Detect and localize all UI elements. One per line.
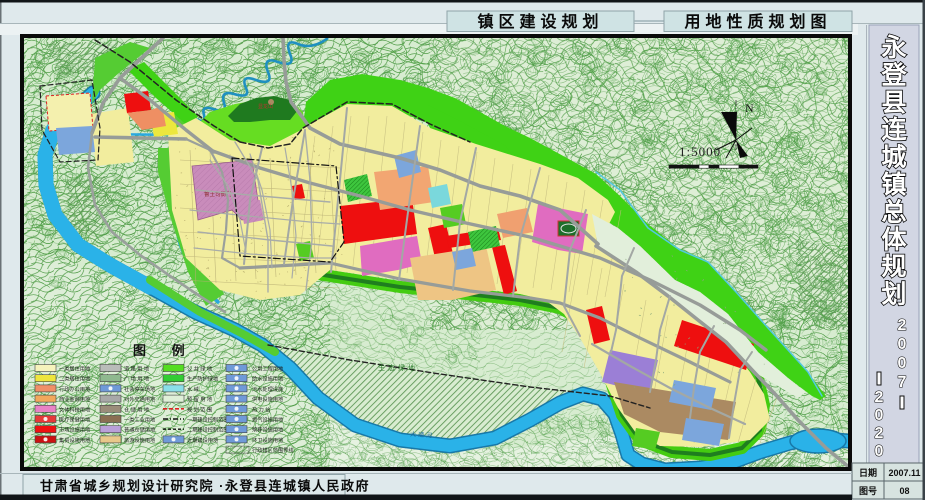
svg-text:0: 0 bbox=[898, 355, 907, 372]
svg-text:集贸设施用地: 集贸设施用地 bbox=[59, 436, 90, 444]
svg-text:永: 永 bbox=[881, 34, 906, 62]
svg-text:普通仓储用地: 普通仓储用地 bbox=[124, 426, 155, 434]
svg-text:登: 登 bbox=[880, 60, 907, 89]
svg-text:旅游设施用地: 旅游设施用地 bbox=[124, 436, 155, 444]
svg-text:生产防护绿地: 生产防护绿地 bbox=[187, 375, 218, 383]
svg-text:对外交通用地: 对外交通用地 bbox=[124, 395, 155, 403]
svg-text:二类居住用地: 二类居住用地 bbox=[59, 375, 90, 383]
svg-text:商业金融用地: 商业金融用地 bbox=[59, 395, 90, 403]
svg-text:日期: 日期 bbox=[859, 467, 877, 478]
svg-text:体: 体 bbox=[881, 226, 907, 254]
svg-text:N: N bbox=[745, 101, 754, 115]
svg-text:污水处理设施: 污水处理设施 bbox=[252, 385, 283, 393]
svg-text:2: 2 bbox=[875, 389, 884, 406]
svg-text:0: 0 bbox=[875, 407, 884, 424]
svg-text:城: 城 bbox=[881, 144, 906, 172]
svg-text:图号: 图号 bbox=[859, 486, 877, 496]
svg-text:二期建设控制范围: 二期建设控制范围 bbox=[187, 426, 229, 434]
svg-text:道 路 用 地: 道 路 用 地 bbox=[124, 365, 149, 373]
svg-text:划: 划 bbox=[881, 281, 906, 309]
svg-text:显龙山: 显龙山 bbox=[258, 103, 273, 110]
svg-text:2: 2 bbox=[898, 317, 907, 334]
svg-text:图 例: 图 例 bbox=[133, 343, 196, 358]
svg-text:水 域: 水 域 bbox=[187, 385, 199, 393]
svg-text:7: 7 bbox=[898, 374, 907, 391]
svg-text:公用工程用地: 公用工程用地 bbox=[252, 365, 283, 373]
svg-text:热 力 站: 热 力 站 bbox=[252, 405, 270, 413]
svg-text:市场设施用地: 市场设施用地 bbox=[59, 426, 90, 434]
svg-text:公 共 绿 地: 公 共 绿 地 bbox=[187, 365, 212, 373]
svg-text:县: 县 bbox=[881, 89, 906, 117]
svg-text:仓 储 用 地: 仓 储 用 地 bbox=[124, 405, 149, 413]
svg-text:医疗保健用地: 医疗保健用地 bbox=[59, 416, 90, 424]
svg-text:预 留 用 地: 预 留 用 地 bbox=[187, 395, 212, 403]
svg-text:生态绿地: 生态绿地 bbox=[378, 363, 418, 372]
svg-text:殡葬设施用地: 殡葬设施用地 bbox=[252, 426, 283, 434]
svg-text:连: 连 bbox=[881, 116, 907, 144]
svg-text:近期建设用地: 近期建设用地 bbox=[187, 436, 218, 444]
svg-text:环卫设施用地: 环卫设施用地 bbox=[252, 436, 283, 444]
svg-text:总: 总 bbox=[881, 198, 906, 226]
svg-text:一类工业用地: 一类工业用地 bbox=[124, 416, 155, 424]
svg-text:行政办公用地: 行政办公用地 bbox=[59, 385, 90, 393]
svg-text:文体科技用地: 文体科技用地 bbox=[59, 405, 90, 413]
svg-text:一类居住用地: 一类居住用地 bbox=[59, 365, 90, 373]
svg-text:一期建设控制范围: 一期建设控制范围 bbox=[187, 416, 229, 424]
svg-text:1:5000: 1:5000 bbox=[679, 144, 721, 159]
svg-text:2: 2 bbox=[875, 425, 884, 442]
svg-text:用地性质规划图: 用地性质规划图 bbox=[684, 12, 831, 31]
svg-text:甘肃省城乡规划设计研究院 ·永登县连城镇人民政府: 甘肃省城乡规划设计研究院 ·永登县连城镇人民政府 bbox=[40, 479, 370, 494]
svg-text:供电设施用地: 供电设施用地 bbox=[252, 395, 283, 403]
svg-text:规 划 范 围: 规 划 范 围 bbox=[187, 405, 212, 413]
svg-text:镇: 镇 bbox=[881, 171, 906, 199]
svg-text:规: 规 bbox=[881, 253, 906, 281]
svg-text:镇区建设规划: 镇区建设规划 bbox=[477, 12, 603, 31]
svg-text:0: 0 bbox=[875, 443, 884, 460]
svg-text:社会停车场地: 社会停车场地 bbox=[124, 385, 155, 393]
svg-text:2007.11: 2007.11 bbox=[888, 468, 920, 478]
svg-text:给水设施用地: 给水设施用地 bbox=[252, 375, 283, 383]
svg-text:广 场 用 地: 广 场 用 地 bbox=[124, 375, 149, 383]
svg-text:08: 08 bbox=[899, 486, 909, 496]
svg-text:行政辖区范围界线: 行政辖区范围界线 bbox=[252, 446, 294, 454]
svg-text:燃气设施用地: 燃气设施用地 bbox=[252, 416, 283, 424]
svg-text:0: 0 bbox=[898, 336, 907, 353]
